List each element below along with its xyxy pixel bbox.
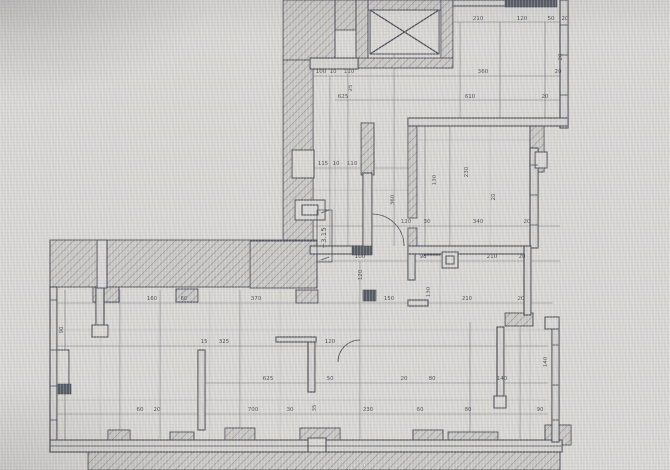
- hatched-wall: [88, 452, 560, 470]
- dimension-label: 360: [478, 69, 489, 75]
- dimension-label: 130: [426, 286, 432, 297]
- dimension-label: 35: [312, 404, 318, 411]
- dimension-label: 30: [424, 219, 431, 225]
- dimension-label: 610: [465, 94, 476, 100]
- floor-plan-drawing: 2101205020100101103602062561020115101101…: [0, 0, 670, 470]
- dimension-label: 80: [429, 376, 436, 382]
- niche-detail: [308, 438, 326, 452]
- dimension-label: 15: [201, 339, 208, 345]
- niche-detail: [494, 396, 506, 408]
- column-block: [363, 290, 376, 301]
- wall: [310, 58, 358, 69]
- hatched-wall: [250, 241, 317, 288]
- dimension-label: 120: [401, 219, 412, 225]
- hatched-wall: [296, 290, 318, 303]
- dimension-label: 100: [355, 254, 366, 260]
- dimension-label: 10: [333, 161, 340, 167]
- dimension-label: 110: [344, 69, 355, 75]
- hatched-wall: [335, 0, 356, 30]
- dimension-label: 625: [338, 94, 349, 100]
- dimension-label: 115: [318, 161, 329, 167]
- dimension-label: 230: [363, 407, 374, 413]
- wall: [453, 0, 512, 6]
- dimension-label: 20: [558, 53, 564, 60]
- dimension-label: 10: [330, 69, 337, 75]
- dimension-label: 700: [248, 407, 259, 413]
- dimension-label: 210: [487, 254, 498, 260]
- dimension-label: 20: [542, 94, 549, 100]
- niche-detail: [302, 205, 318, 215]
- dimension-label: 340: [473, 219, 484, 225]
- hatched-wall: [356, 0, 453, 10]
- wall: [408, 118, 568, 126]
- dimension-label: 100: [316, 69, 327, 75]
- wall: [408, 300, 428, 306]
- dimension-label: 120: [517, 16, 528, 22]
- dimension-label: 60: [137, 407, 144, 413]
- dimension-label: 120: [325, 339, 336, 345]
- niche-detail: [446, 256, 454, 264]
- column-block: [505, 0, 557, 7]
- wall: [408, 254, 415, 280]
- hatched-wall: [361, 123, 374, 175]
- dimension-label: 360: [390, 194, 396, 205]
- dimension-label: 625: [263, 376, 274, 382]
- dimension-label: 110: [347, 161, 358, 167]
- photographed-blueprint: 2101205020100101103602062561020115101101…: [0, 0, 670, 470]
- column-block: [57, 384, 71, 394]
- dimension-label: 20: [555, 69, 562, 75]
- dimension-label: 20: [562, 16, 569, 22]
- niche-detail: [292, 150, 314, 178]
- niche-detail: [97, 240, 107, 288]
- dimension-label: 90: [59, 326, 65, 333]
- dimension-label: 210: [473, 16, 484, 22]
- dimension-label: 50: [327, 376, 334, 382]
- dimension-label: 20: [524, 219, 531, 225]
- niche-detail: [92, 325, 108, 337]
- wall: [408, 246, 526, 254]
- hatched-wall: [283, 0, 335, 60]
- hatched-wall: [408, 122, 417, 218]
- wall: [276, 337, 316, 342]
- dimension-label: 160: [147, 296, 158, 302]
- dimension-label: 60: [417, 407, 424, 413]
- dimension-label: 230: [464, 166, 470, 177]
- hatched-wall: [356, 58, 453, 68]
- dimension-label: 98: [420, 254, 427, 260]
- dimension-label: 150: [384, 296, 395, 302]
- wall: [198, 350, 205, 430]
- level-marker-label: +3.15: [320, 227, 328, 248]
- dimension-label: 80: [465, 407, 472, 413]
- dimension-label: 20: [518, 296, 525, 302]
- dimension-label: 25: [348, 84, 354, 91]
- dimension-label: 140: [497, 376, 508, 382]
- dimension-label: 130: [432, 174, 438, 185]
- wall: [96, 287, 104, 327]
- niche-detail: [57, 350, 69, 386]
- wall: [552, 317, 559, 442]
- dimension-label: 20: [491, 193, 497, 200]
- niche-detail: [535, 152, 547, 168]
- wall: [50, 287, 57, 452]
- dimension-label: 20: [519, 254, 526, 260]
- dimension-label: 50: [548, 16, 555, 22]
- wall: [363, 173, 372, 247]
- dimension-label: 210: [462, 296, 473, 302]
- dimension-label: 120: [358, 269, 364, 280]
- dimension-label: 20: [154, 407, 161, 413]
- wall: [308, 340, 315, 392]
- wall: [497, 327, 504, 402]
- dimension-label: 60: [181, 296, 188, 302]
- dimension-label: 325: [219, 339, 230, 345]
- dimension-label: 140: [543, 356, 549, 367]
- dimension-label: 370: [251, 296, 262, 302]
- dimension-label: 20: [401, 376, 408, 382]
- niche-detail: [545, 317, 559, 329]
- dimension-label: 30: [287, 407, 294, 413]
- dimension-label: 90: [537, 407, 544, 413]
